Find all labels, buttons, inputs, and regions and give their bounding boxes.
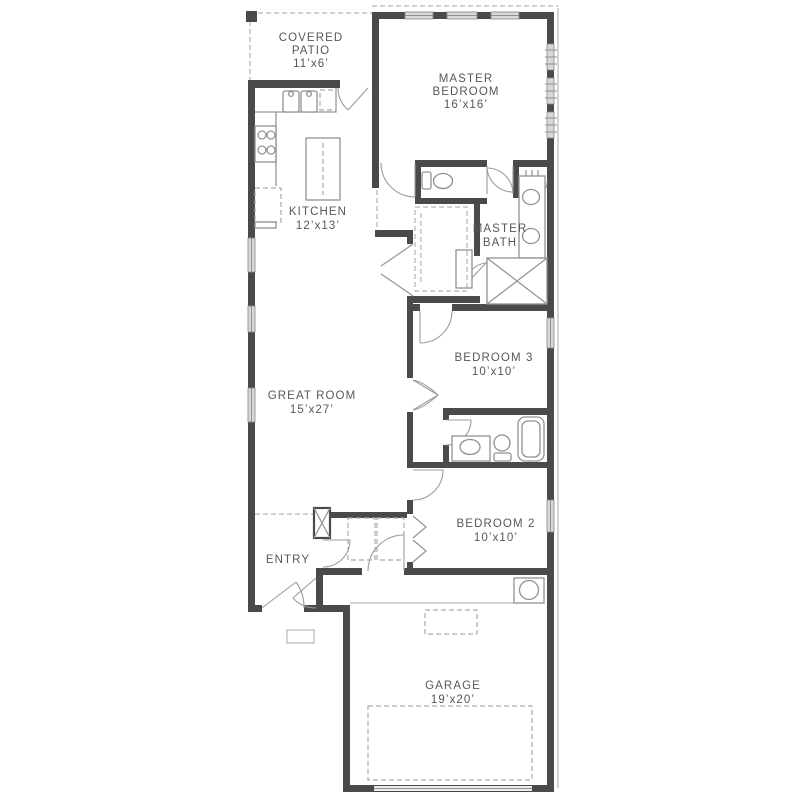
water-closet-door bbox=[487, 168, 513, 194]
great-room-name: GREAT ROOM bbox=[268, 390, 357, 402]
master-bath-door bbox=[487, 166, 513, 192]
floor-plan-page: COVERED PATIO 11’x6’ MASTER BEDROOM 16’x… bbox=[0, 0, 800, 800]
toilet-bowl bbox=[434, 174, 453, 189]
double-vanity bbox=[519, 176, 545, 258]
vanity-sink bbox=[523, 190, 540, 205]
master-bedroom-door bbox=[381, 163, 415, 197]
doors bbox=[262, 88, 547, 608]
bedroom-2-name: BEDROOM 2 bbox=[457, 518, 536, 530]
master-bath-name: MASTER bbox=[473, 223, 528, 235]
covered-patio-dims: 11’x6’ bbox=[293, 58, 329, 70]
porch-stoop bbox=[287, 630, 314, 643]
bedroom-3-dims: 10’x10’ bbox=[472, 366, 516, 378]
bedroom-3-name: BEDROOM 3 bbox=[455, 352, 534, 364]
label-kitchen: KITCHEN 12’x13’ bbox=[289, 206, 347, 232]
bedroom-hall-doors bbox=[413, 380, 438, 410]
entry-name: ENTRY bbox=[266, 554, 310, 566]
svg-text:BATH: BATH bbox=[483, 237, 517, 249]
mud-laundry bbox=[255, 508, 404, 643]
toilet-tank bbox=[422, 172, 431, 189]
shower-bench bbox=[456, 250, 472, 288]
garage-dims: 19’x20’ bbox=[431, 694, 475, 706]
washer-space bbox=[348, 518, 375, 560]
hall-bath-fixtures bbox=[452, 417, 544, 461]
toilet-tank bbox=[494, 453, 511, 461]
label-great-room: GREAT ROOM 15’x27’ bbox=[268, 390, 357, 416]
patio-door bbox=[338, 88, 368, 110]
bedroom-2-dims: 10’x10’ bbox=[474, 532, 518, 544]
garage-entry-door bbox=[368, 535, 404, 571]
roof-overhang-lines bbox=[372, 6, 558, 788]
label-bedroom-2: BEDROOM 2 10’x10’ bbox=[457, 518, 536, 544]
label-master-bedroom: MASTER BEDROOM 16’x16’ bbox=[432, 73, 499, 111]
refrigerator-space bbox=[255, 188, 281, 222]
dryer-space bbox=[377, 518, 404, 560]
room-labels: COVERED PATIO 11’x6’ MASTER BEDROOM 16’x… bbox=[266, 32, 536, 706]
toilet-bowl bbox=[494, 435, 510, 451]
kitchen-name: KITCHEN bbox=[289, 206, 347, 218]
great-room-dims: 15’x27’ bbox=[290, 404, 334, 416]
vanity-sink bbox=[460, 440, 480, 455]
garage-name: GARAGE bbox=[425, 680, 481, 692]
label-covered-patio: COVERED PATIO 11’x6’ bbox=[279, 32, 344, 70]
bedroom-2-bifold bbox=[413, 516, 426, 562]
exterior-walls bbox=[248, 12, 554, 792]
dishwasher-space bbox=[320, 90, 336, 110]
patio-post bbox=[246, 11, 257, 22]
front-door bbox=[262, 582, 304, 608]
label-entry: ENTRY bbox=[266, 554, 310, 566]
faucet-icon bbox=[289, 92, 294, 97]
cabinet-end bbox=[255, 222, 276, 228]
label-bedroom-3: BEDROOM 3 10’x10’ bbox=[455, 352, 534, 378]
label-garage: GARAGE 19’x20’ bbox=[425, 680, 481, 706]
covered-patio-name: COVERED bbox=[279, 32, 344, 44]
bedroom-2-door bbox=[413, 470, 443, 500]
great-room-double-doors bbox=[381, 244, 413, 296]
svg-text:BEDROOM: BEDROOM bbox=[432, 86, 499, 98]
svg-text:PATIO: PATIO bbox=[292, 45, 330, 57]
mud-room-door bbox=[323, 540, 350, 567]
chase-box bbox=[314, 508, 330, 538]
attic-access bbox=[425, 610, 477, 634]
faucet-icon bbox=[307, 92, 312, 97]
car-space bbox=[368, 706, 532, 780]
kitchen-dims: 12’x13’ bbox=[296, 220, 340, 232]
master-bedroom-dims: 16’x16’ bbox=[444, 99, 488, 111]
master-bath-fixtures bbox=[415, 170, 547, 304]
bedroom-3-door bbox=[420, 311, 452, 343]
floor-plan: COVERED PATIO 11’x6’ MASTER BEDROOM 16’x… bbox=[0, 0, 800, 800]
master-bedroom-name: MASTER bbox=[439, 73, 494, 85]
